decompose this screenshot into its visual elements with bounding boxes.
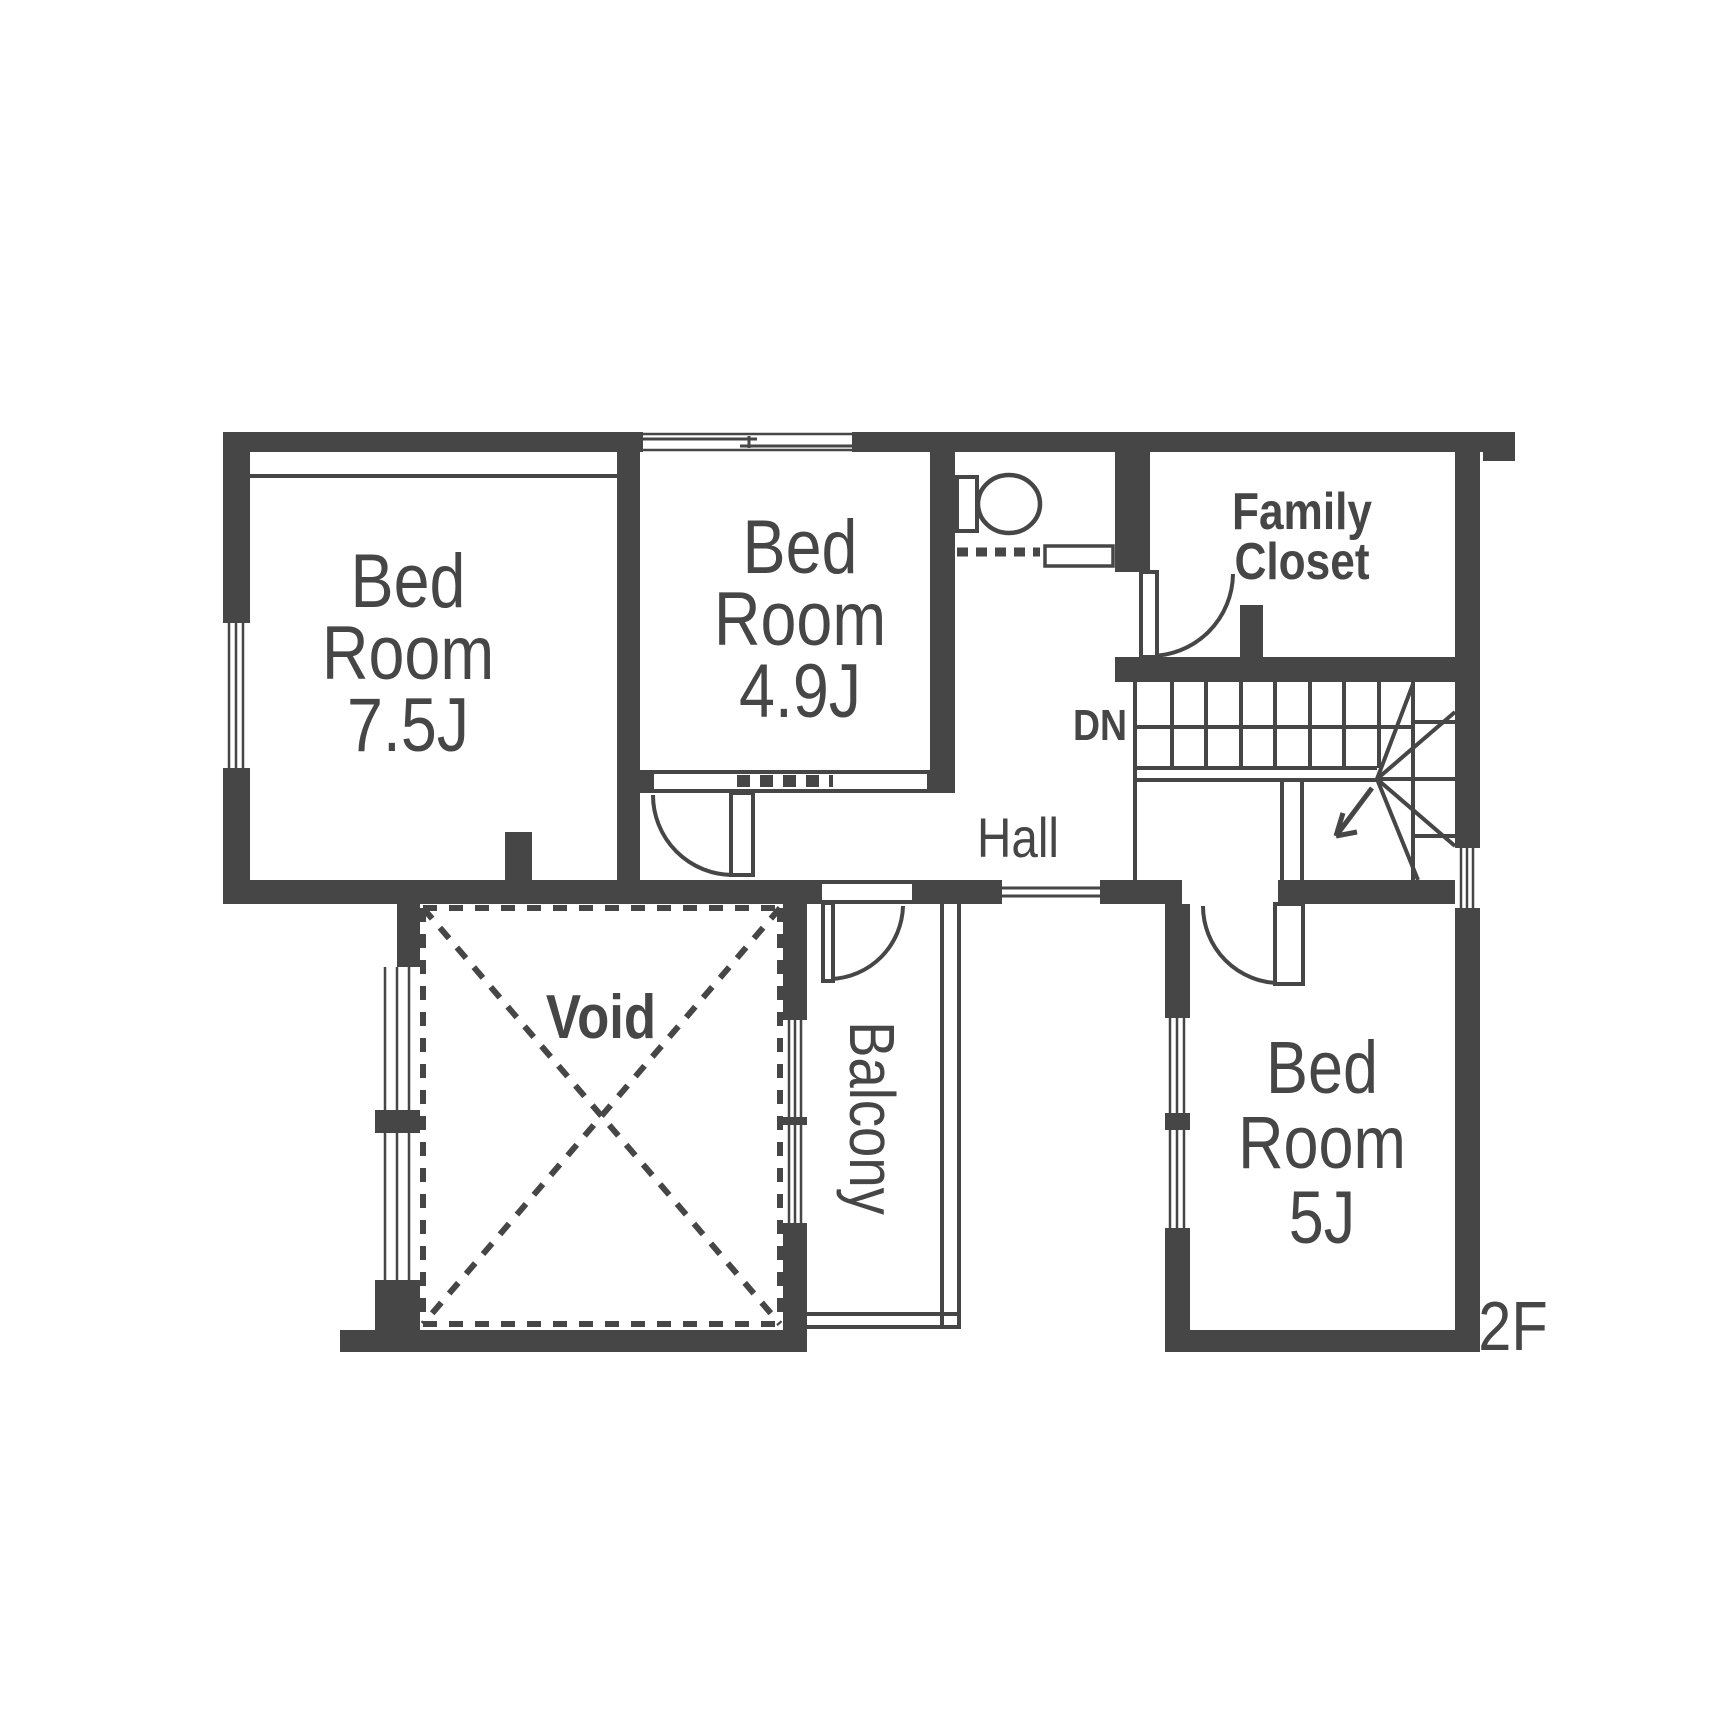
stair-down-arrow-icon [1336,788,1372,836]
room-label-bedroom-7-5j: Bed Room 7.5J [238,546,578,762]
door-swing [1203,904,1303,984]
room-label-line: Room [1152,1105,1492,1180]
floor-label: 2F [1428,1291,1598,1361]
stairs-down-label: DN [1015,704,1185,748]
room-label-bedroom-4-9j: Bed Room 4.9J [630,512,970,728]
room-label-line: Room [630,584,970,656]
room-size-label: 4.9J [630,656,970,728]
floor-plan-drawing [0,0,1711,1711]
room-label-balcony: Balcony [840,948,904,1288]
room-size-label: 7.5J [238,690,578,762]
room-size-label: 5J [1152,1180,1492,1255]
room-label-void: Void [474,987,729,1049]
window [643,432,852,452]
room-label-line: Closet [1132,537,1472,587]
room-label-family-closet: Family Closet [1132,487,1472,587]
floor-plan: Bed Room 7.5J Bed Room 4.9J Bed Room 5J … [0,0,1711,1711]
room-label-line: Family [1132,487,1472,537]
door-swing [653,793,753,875]
window [1455,848,1480,908]
room-label-line: Bed [1152,1030,1492,1105]
room-label-line: Bed [238,546,578,618]
room-label-bedroom-5j: Bed Room 5J [1152,1030,1492,1255]
room-label-line: Room [238,618,578,690]
room-label-hall: Hall [891,810,1146,866]
counter [1045,546,1113,566]
window [1002,880,1100,904]
void-dashed-outline [423,908,780,1324]
room-label-line: Bed [630,512,970,584]
